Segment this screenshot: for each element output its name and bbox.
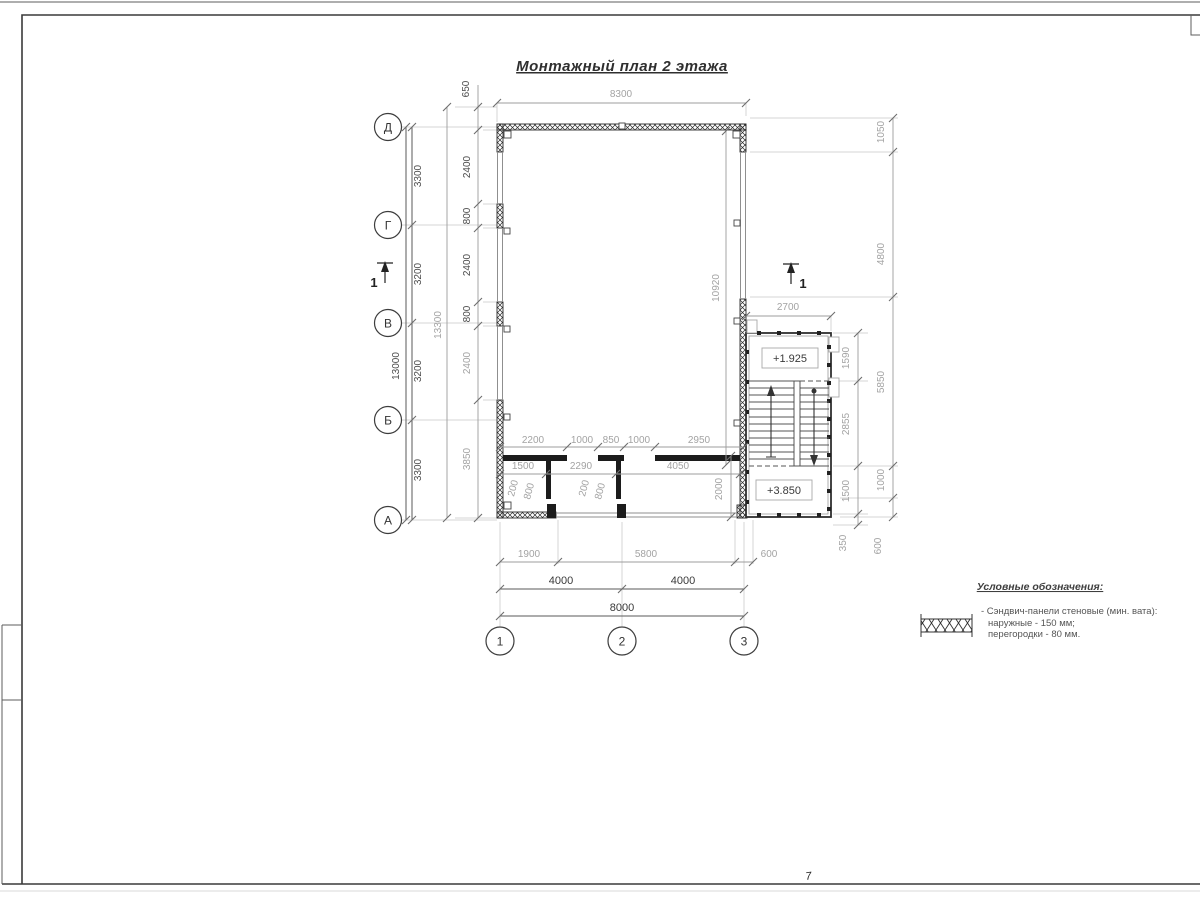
partition-vertical <box>546 461 551 499</box>
dim-label: 4000 <box>549 575 573 587</box>
column-marker <box>734 420 740 426</box>
frame-left-stamp-strip <box>2 625 22 884</box>
legend-item-line: перегородки - 80 мм. <box>988 629 1080 640</box>
wall-stub-axis-g <box>497 204 503 228</box>
stair-door-tab <box>829 378 839 397</box>
wall-west-south-part <box>497 400 503 518</box>
dim-label: 1590 <box>841 346 852 369</box>
axis-label: Г <box>385 219 392 233</box>
dim-label: 10920 <box>711 274 722 302</box>
dim-label: 1000 <box>628 435 651 446</box>
page-mark: 7 <box>805 870 814 883</box>
dim-label: 850 <box>603 435 620 446</box>
dim-label: 2855 <box>841 412 852 435</box>
dim-label: 2200 <box>522 435 545 446</box>
dim-label: 2400 <box>462 351 473 374</box>
drawing-sheet: 7 Монтажный план 2 этажа <box>0 0 1200 900</box>
dim-label: 800 <box>462 207 473 224</box>
dim-label: 800 <box>522 481 537 500</box>
dim-label: 3200 <box>413 262 424 285</box>
partition-foot <box>547 504 556 518</box>
dim-label: 2400 <box>462 155 473 178</box>
dim-label: 2700 <box>777 302 800 313</box>
frame-corner-box <box>1191 15 1200 35</box>
dim-label: 600 <box>873 537 884 554</box>
column-marker <box>504 326 510 332</box>
column-marker <box>734 318 740 324</box>
axis-label: 2 <box>619 635 626 649</box>
legend: Условные обозначения: - Сэндвич-панели с… <box>921 581 1157 640</box>
dim-label: 8000 <box>610 602 634 614</box>
column-marker <box>504 502 511 509</box>
floor-plan-drawing: 7 Монтажный план 2 этажа <box>0 0 1200 900</box>
legend-title: Условные обозначения: <box>977 581 1104 593</box>
dim-label: 200 <box>577 478 592 497</box>
dim-label: 1500 <box>512 461 535 472</box>
wall-east-south-part <box>740 299 746 518</box>
wall-stub-northeast <box>740 124 746 152</box>
dim-label: 13000 <box>391 352 402 380</box>
partition-segment <box>598 455 624 461</box>
dim-label: 600 <box>761 549 778 560</box>
section-label: 1 <box>370 275 377 290</box>
sheet-frame: 7 <box>0 2 1200 891</box>
stair-door-tab <box>747 320 757 333</box>
column-marker <box>504 414 510 420</box>
dim-label: 4050 <box>667 461 690 472</box>
dim-label: 13300 <box>433 311 444 339</box>
staircase: +1.925 +3.850 <box>746 320 839 517</box>
partition-vertical <box>616 461 621 499</box>
wall-stub-axis-v <box>497 302 503 326</box>
sandwich-panel-hatch-symbol <box>921 619 972 632</box>
wall-stub-northwest <box>497 124 503 152</box>
glazing-lines <box>498 152 746 517</box>
wall-columns <box>504 123 740 509</box>
dim-label: 2950 <box>688 435 711 446</box>
dim-label: 3300 <box>413 458 424 481</box>
dim-label: 200 <box>506 478 521 497</box>
axis-label: А <box>384 514 392 528</box>
dim-label: 350 <box>838 534 849 551</box>
dim-label: 1900 <box>518 549 541 560</box>
stair-door-tab <box>829 337 839 352</box>
dim-label: 1000 <box>571 435 594 446</box>
interior-partitions <box>503 455 740 518</box>
elevation-label: +1.925 <box>773 353 807 365</box>
stair-divider-wall <box>794 381 800 466</box>
drawing-title: Монтажный план 2 этажа <box>516 58 728 75</box>
dim-label: 1500 <box>841 479 852 502</box>
dim-label: 3200 <box>413 359 424 382</box>
axis-label: 1 <box>497 635 504 649</box>
axis-label: 3 <box>741 635 748 649</box>
column-marker <box>734 220 740 226</box>
column-marker <box>733 131 740 138</box>
axis-markers: Д Г В Б А 1 2 3 <box>375 114 759 656</box>
section-marks: 1 1 <box>370 261 806 291</box>
axis-label: Б <box>384 414 392 428</box>
legend-item-line: наружные - 150 мм; <box>988 618 1075 629</box>
frame-border <box>22 15 1200 884</box>
dim-label: 2290 <box>570 461 593 472</box>
column-marker <box>504 228 510 234</box>
dim-label: 3850 <box>462 447 473 470</box>
dim-label: 650 <box>461 80 472 97</box>
column-marker <box>504 131 511 138</box>
dim-label: 1000 <box>876 468 887 491</box>
dim-label: 5800 <box>635 549 658 560</box>
dim-label: 1050 <box>876 120 887 143</box>
dim-label: 4800 <box>876 242 887 265</box>
partition-foot <box>617 504 626 518</box>
axis-label: В <box>384 317 392 331</box>
dim-label: 8300 <box>610 89 633 100</box>
legend-item-line: - Сэндвич-панели стеновые (мин. вата): <box>981 606 1157 617</box>
column-marker <box>619 123 625 129</box>
dim-label: 800 <box>462 305 473 322</box>
dim-label: 800 <box>593 481 608 500</box>
dim-label: 3300 <box>413 164 424 187</box>
section-label: 1 <box>799 276 806 291</box>
dim-label: 2000 <box>714 477 725 500</box>
elevation-label: +3.850 <box>767 485 801 497</box>
axis-label: Д <box>384 121 392 135</box>
dim-label: 2400 <box>462 253 473 276</box>
dim-label: 5850 <box>876 370 887 393</box>
dim-label: 4000 <box>671 575 695 587</box>
